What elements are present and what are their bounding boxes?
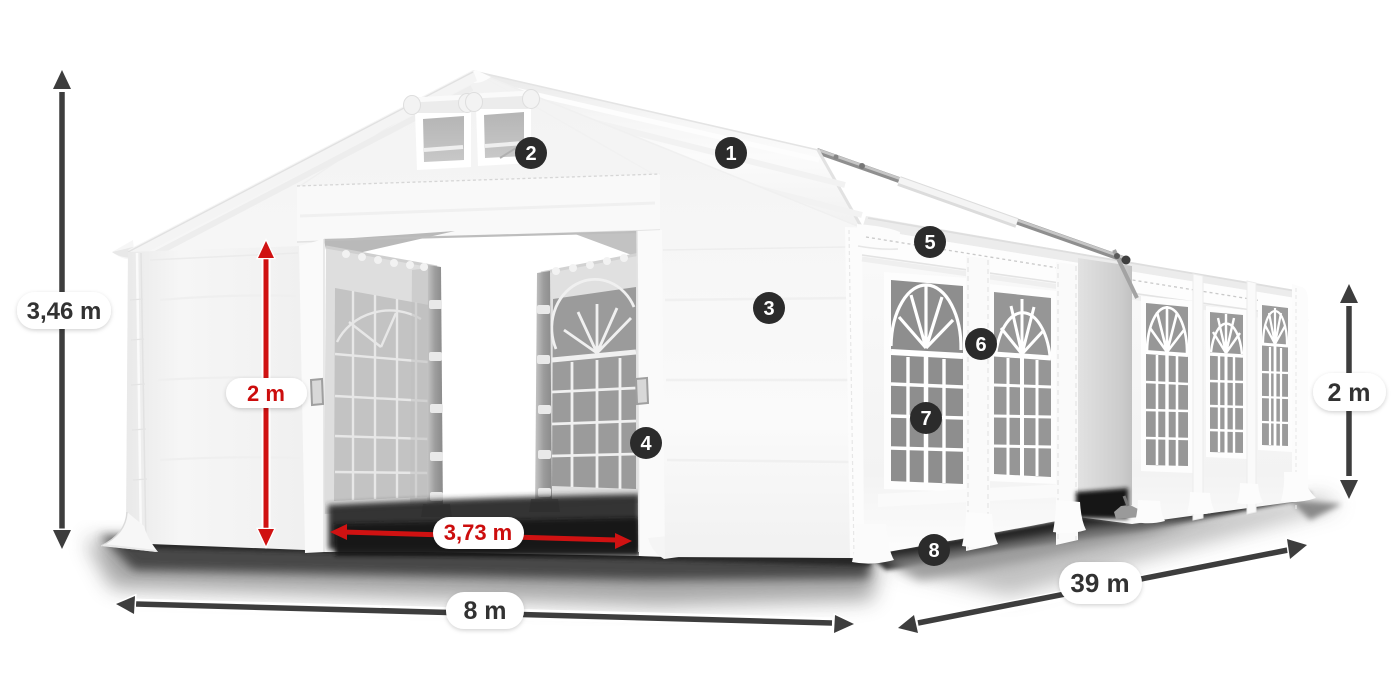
svg-text:5: 5 bbox=[924, 232, 935, 254]
svg-text:3: 3 bbox=[763, 298, 774, 320]
svg-text:8 m: 8 m bbox=[463, 597, 506, 625]
svg-text:4: 4 bbox=[640, 433, 652, 455]
svg-text:6: 6 bbox=[975, 334, 986, 356]
svg-text:2: 2 bbox=[525, 143, 536, 165]
svg-text:2 m: 2 m bbox=[247, 381, 285, 406]
svg-text:7: 7 bbox=[920, 408, 931, 430]
svg-text:2 m: 2 m bbox=[1327, 379, 1370, 407]
svg-text:3,73 m: 3,73 m bbox=[444, 520, 513, 545]
svg-text:39 m: 39 m bbox=[1070, 568, 1129, 598]
svg-text:3,46 m: 3,46 m bbox=[27, 298, 102, 325]
svg-text:1: 1 bbox=[725, 143, 736, 165]
svg-text:8: 8 bbox=[928, 540, 939, 562]
